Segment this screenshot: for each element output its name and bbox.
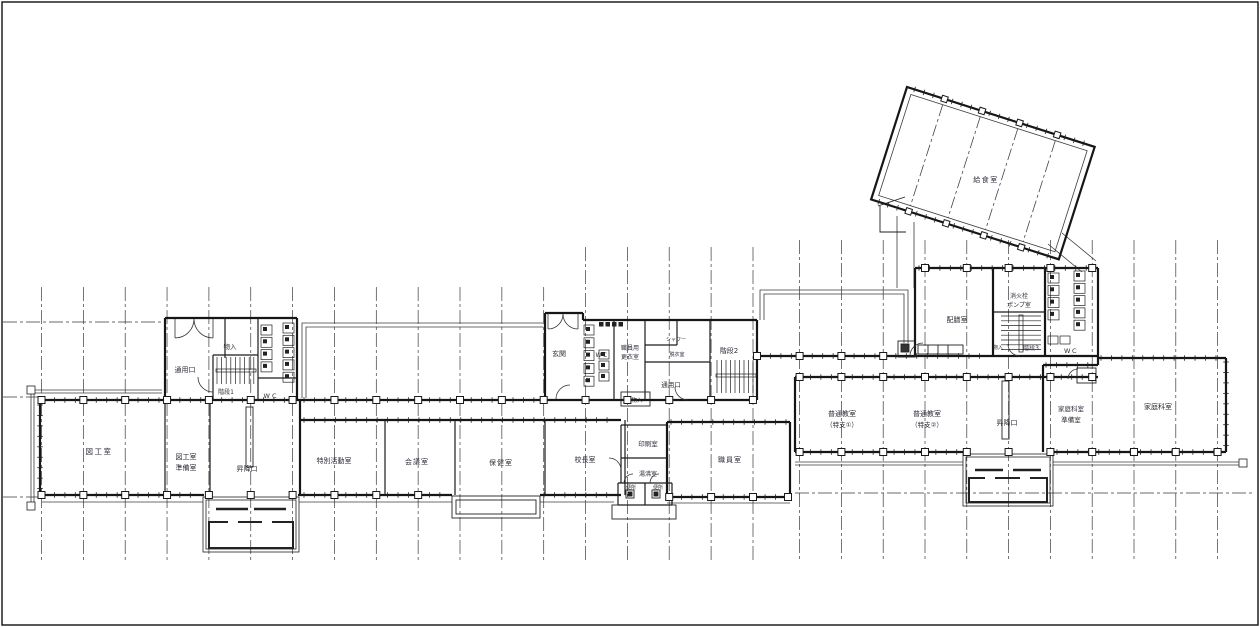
toilet-fixture-dot — [1050, 275, 1054, 279]
kitchen-walkway — [897, 216, 914, 288]
toilet-fixture-dot — [285, 350, 289, 354]
toilet-fixture-dot — [263, 352, 267, 356]
toilet-fixture-dot — [586, 353, 590, 357]
room-label-wc-left: WC — [264, 392, 279, 400]
room-label-shower: シャワー — [666, 337, 686, 343]
column-marker — [80, 397, 87, 404]
toilet-fixture-dot — [285, 325, 289, 329]
column-marker — [1005, 265, 1012, 272]
toilet-fixture-dot — [1050, 312, 1054, 316]
column-marker — [1089, 374, 1096, 381]
column-marker — [963, 449, 970, 456]
stair-rail — [216, 369, 256, 372]
column-marker — [1131, 449, 1138, 456]
floor-plan-sheet: 図工室 図工室 準備室 昇降口 通用口 物入 階段1 WC 特別活動室 会議室 … — [0, 0, 1260, 627]
shoe-shelf — [246, 407, 253, 467]
room-label-lunch-room: 給食室 — [973, 175, 999, 184]
toilet-fixture-dot — [285, 374, 289, 378]
column-marker — [289, 492, 296, 499]
toilet-fixture-dot — [586, 340, 590, 344]
column-marker — [796, 374, 803, 381]
urinal-dot — [599, 322, 604, 327]
room-label-art: 図工室 — [86, 446, 113, 456]
column-marker — [1017, 244, 1025, 252]
column-marker — [38, 492, 45, 499]
column-marker — [1005, 374, 1012, 381]
room-label-kitchenette: 湯沸室 — [639, 470, 657, 478]
room-label-classroom2-2: （特支②） — [911, 420, 943, 429]
room-label-storage-left: 物入 — [224, 342, 238, 351]
column-marker — [942, 220, 950, 228]
toilet-fixture-dot — [601, 374, 605, 378]
column-marker — [963, 265, 970, 272]
column-marker — [838, 449, 845, 456]
column-marker — [1089, 449, 1096, 456]
room-label-dressing: 脱衣室 — [669, 351, 684, 358]
room-label-service-left: 通用口 — [175, 365, 196, 374]
room-label-pump-2: ポンプ室 — [1007, 301, 1031, 309]
room-label-wc-mid: WC — [595, 352, 608, 359]
room-label-homeec-prep-2: 準備室 — [1061, 415, 1081, 424]
column-marker — [880, 374, 887, 381]
canopy-post — [27, 386, 35, 394]
column-marker — [785, 494, 792, 501]
toilet-fixture-dot — [601, 363, 605, 367]
column-marker — [905, 208, 913, 216]
terrace-south-bump-inner — [456, 500, 536, 514]
room-label-stairs2: 階段2 — [720, 346, 738, 355]
room-label-art-prep-1: 図工室 — [176, 452, 197, 461]
lunch-room-building — [870, 84, 1095, 262]
room-labels: 図工室 図工室 準備室 昇降口 通用口 物入 階段1 WC 特別活動室 会議室 … — [86, 175, 1173, 491]
toilet-fixture-dot — [263, 327, 267, 331]
column-marker — [38, 397, 45, 404]
column-marker — [796, 449, 803, 456]
toilet-fixtures — [261, 271, 1085, 386]
room-label-principal: 校長室 — [575, 455, 596, 464]
column-marker — [1047, 374, 1054, 381]
column-marker — [1089, 265, 1096, 272]
column-marker — [373, 492, 380, 499]
urinal-dot — [619, 322, 624, 327]
toilet-fixture-dot — [586, 365, 590, 369]
column-marker — [122, 397, 129, 404]
column-marker — [978, 107, 986, 115]
room-label-toilet-small-left: 便所 — [626, 484, 636, 491]
room-label-classroom1-2: （特支①） — [826, 420, 858, 429]
column-marker — [582, 397, 589, 404]
entrance-porches — [203, 454, 1053, 552]
toilet-fixture-dot — [1050, 287, 1054, 291]
toilet-fixture-dot — [263, 339, 267, 343]
column-marker — [247, 492, 254, 499]
column-marker — [80, 492, 87, 499]
room-label-art-prep-2: 準備室 — [176, 463, 197, 472]
column-marker — [838, 353, 845, 360]
lunch-room-inner-wall — [879, 95, 1087, 252]
column-marker — [922, 374, 929, 381]
fixtures-and-details — [246, 197, 1096, 519]
column-marker — [331, 397, 338, 404]
toilet-fixture-dot — [285, 337, 289, 341]
toilet-fixture-dot — [1076, 322, 1080, 326]
toilet-bump — [612, 505, 676, 519]
room-label-meeting: 会議室 — [405, 457, 429, 466]
room-label-service-mid: 通用口 — [661, 380, 681, 389]
urinal-dot — [606, 322, 611, 327]
room-label-entrance-right: 昇降口 — [997, 418, 1018, 427]
column-marker — [754, 353, 761, 360]
room-label-storage-right: 物入 — [993, 344, 1003, 351]
room-label-serving: 配膳室 — [947, 315, 968, 324]
room-label-stairs3: 階段3 — [1023, 344, 1039, 352]
toilet-fixture-dot — [263, 364, 267, 368]
column-marker — [963, 374, 970, 381]
column-marker — [922, 449, 929, 456]
column-marker — [498, 397, 505, 404]
column-marker — [164, 492, 171, 499]
column-marker — [749, 397, 756, 404]
terrace-south-bump — [452, 496, 540, 518]
column-marker — [205, 397, 212, 404]
column-marker — [750, 494, 757, 501]
canopy-post — [27, 502, 35, 510]
column-marker — [1016, 119, 1024, 127]
room-label-wc-right: WC — [1064, 347, 1078, 355]
toilet-fixture-dot — [285, 362, 289, 366]
toilet-fixture-dot — [586, 378, 590, 382]
column-marker — [666, 494, 673, 501]
column-marker — [941, 95, 949, 103]
toilet-fixture-dot — [1076, 310, 1080, 314]
column-marker — [1005, 449, 1012, 456]
column-marker — [331, 492, 338, 499]
room-label-classroom2-1: 普通教室 — [913, 409, 941, 418]
column-marker — [666, 397, 673, 404]
room-label-front-entrance: 玄関 — [552, 349, 566, 358]
room-label-staff-room: 職員室 — [718, 455, 742, 464]
column-marker — [980, 232, 988, 240]
stair-rail — [716, 374, 756, 377]
column-marker — [205, 492, 212, 499]
room-label-storage-mid: 物入 — [631, 396, 643, 404]
room-label-toilet-small-right: 便所 — [653, 484, 663, 491]
courtyard-canopy-mid — [760, 290, 908, 343]
column-marker — [838, 374, 845, 381]
toilet-box-dot — [654, 492, 658, 496]
column-marker — [796, 353, 803, 360]
room-label-homeec: 家庭科室 — [1144, 402, 1172, 411]
floor-plan-canvas: 図工室 図工室 準備室 昇降口 通用口 物入 階段1 WC 特別活動室 会議室 … — [0, 0, 1260, 627]
toilet-fixture-dot — [1076, 273, 1080, 277]
column-marker — [247, 397, 254, 404]
courtyard-canopy-left — [302, 323, 543, 398]
south-eaves-right — [795, 462, 1240, 465]
room-label-special-activity: 特別活動室 — [317, 456, 352, 465]
column-marker — [1053, 131, 1061, 139]
sink — [1048, 336, 1058, 344]
lunch-room-bay-lines — [910, 105, 1055, 242]
toilet-fixture-dot — [1076, 285, 1080, 289]
room-label-entrance-left: 昇降口 — [237, 464, 258, 473]
sheet-border — [2, 2, 1258, 625]
room-label-staff-locker-2: 更衣室 — [621, 353, 639, 361]
porch-right — [963, 454, 1053, 506]
toilet-fixture-dot — [586, 327, 590, 331]
room-label-print: 印刷室 — [638, 439, 658, 448]
column-marker — [373, 397, 380, 404]
room-label-pump-1: 消火栓 — [1010, 292, 1028, 300]
room-label-health: 保健室 — [489, 458, 513, 467]
column-marker — [1047, 449, 1054, 456]
column-marker — [1047, 265, 1054, 272]
eaves-end-post — [1239, 459, 1247, 467]
urinal-dot — [612, 322, 617, 327]
serving-counter-lines — [928, 345, 948, 354]
column-marker — [457, 397, 464, 404]
room-label-staff-locker-1: 職員用 — [621, 344, 639, 352]
south-eaves-left — [42, 502, 790, 503]
column-marker — [540, 397, 547, 404]
sink — [1060, 336, 1070, 344]
column-marker — [1214, 449, 1221, 456]
column-marker — [880, 449, 887, 456]
column-marker — [880, 353, 887, 360]
column-marker — [708, 397, 715, 404]
column-marker — [1172, 449, 1179, 456]
column-marker — [415, 492, 422, 499]
serving-annex-box — [901, 344, 909, 352]
shoe-shelf — [1002, 381, 1009, 439]
column-marker — [289, 397, 296, 404]
room-label-stairs1: 階段1 — [218, 388, 234, 396]
column-marker — [624, 397, 631, 404]
column-marker — [708, 494, 715, 501]
column-marker — [122, 492, 129, 499]
room-label-homeec-prep-1: 家庭科室 — [1058, 404, 1085, 413]
toilet-fixture-dot — [1050, 300, 1054, 304]
column-marker — [415, 397, 422, 404]
toilet-box-dot — [628, 492, 632, 496]
room-label-classroom1-1: 普通教室 — [828, 409, 856, 418]
column-marker — [164, 397, 171, 404]
column-marker — [922, 265, 929, 272]
toilet-fixture-dot — [1076, 298, 1080, 302]
